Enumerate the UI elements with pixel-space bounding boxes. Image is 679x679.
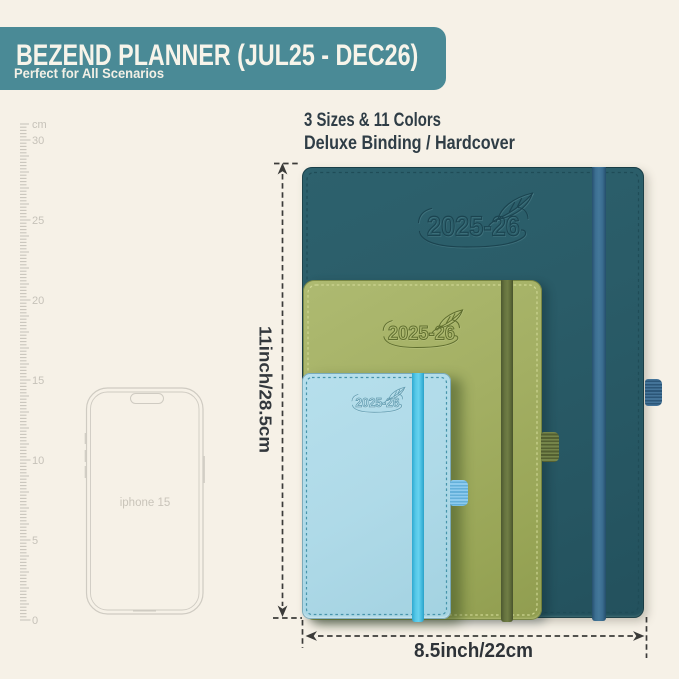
svg-text:8.5inch/22cm: 8.5inch/22cm (414, 639, 533, 662)
svg-text:11inch/28.5cm: 11inch/28.5cm (256, 326, 276, 453)
